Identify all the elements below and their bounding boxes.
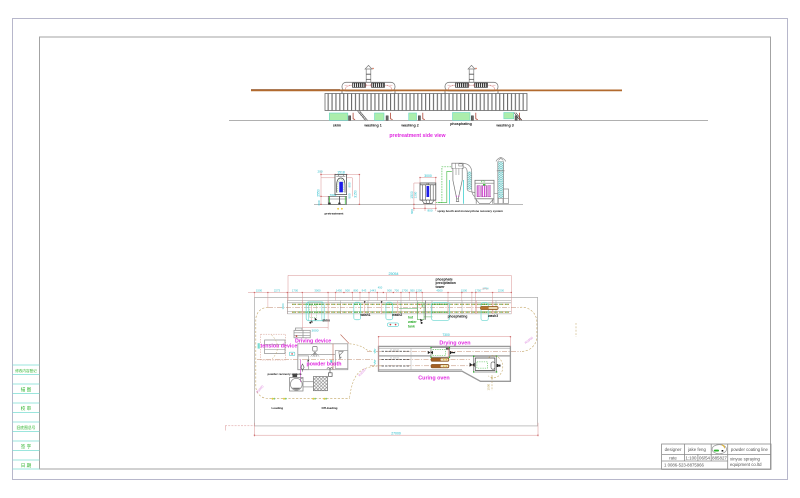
svg-text:tower: tower <box>436 285 446 289</box>
svg-text:skim: skim <box>333 124 341 128</box>
svg-text:powder coating line: powder coating line <box>731 447 769 452</box>
svg-text:tank: tank <box>408 324 415 328</box>
svg-text:修改内容登记: 修改内容登记 <box>15 368 37 373</box>
svg-text:1450: 1450 <box>336 288 343 292</box>
svg-text:wash2: wash2 <box>391 313 402 317</box>
svg-text:1700: 1700 <box>292 288 299 292</box>
svg-text:phosphating: phosphating <box>448 314 468 318</box>
svg-text:water: water <box>407 320 417 324</box>
svg-text:jake feng: jake feng <box>687 447 706 452</box>
svg-text:800: 800 <box>427 208 432 212</box>
svg-text:06/54: 06/54 <box>699 456 711 461</box>
svg-text:designer: designer <box>665 447 682 452</box>
svg-text:spray booth and monocyclone re: spray booth and monocyclone recovery sys… <box>437 209 503 213</box>
svg-text:描 图: 描 图 <box>21 386 32 393</box>
svg-text:25054: 25054 <box>389 272 399 276</box>
svg-text:450: 450 <box>378 285 383 289</box>
svg-text:tension device: tension device <box>261 344 298 350</box>
svg-text:3150: 3150 <box>354 190 358 198</box>
svg-text:900: 900 <box>345 288 350 292</box>
svg-text:1443: 1443 <box>370 288 377 292</box>
svg-text:skim: skim <box>322 319 330 323</box>
svg-text:2550: 2550 <box>317 189 321 197</box>
svg-text:3000: 3000 <box>424 174 432 178</box>
svg-text:1500: 1500 <box>487 383 491 390</box>
svg-text:1200: 1200 <box>413 191 417 198</box>
svg-text:1500: 1500 <box>461 288 468 292</box>
svg-text:1700: 1700 <box>402 288 409 292</box>
svg-text:11 140 11: 11 140 11 <box>390 349 400 351</box>
svg-text:800: 800 <box>353 288 358 292</box>
svg-text:旧底图总号: 旧底图总号 <box>17 425 36 430</box>
svg-text:27000: 27000 <box>391 431 401 435</box>
svg-text:943: 943 <box>362 288 367 292</box>
svg-text:pretreatment: pretreatment <box>325 211 344 215</box>
svg-text:签 字: 签 字 <box>21 443 32 449</box>
svg-text:3000: 3000 <box>312 329 319 333</box>
svg-text:7300: 7300 <box>442 333 450 337</box>
svg-text:800: 800 <box>348 193 352 198</box>
svg-text:950: 950 <box>410 288 415 292</box>
svg-text:pretreatment side view: pretreatment side view <box>389 133 446 139</box>
svg-text:900: 900 <box>348 182 352 187</box>
svg-text:1 0086-523-8875966: 1 0086-523-8875966 <box>664 463 705 468</box>
svg-text:hot: hot <box>408 315 414 319</box>
svg-text:Drying oven: Drying oven <box>439 341 470 347</box>
svg-text:phosphating: phosphating <box>450 122 472 126</box>
svg-text:885827: 885827 <box>712 456 727 461</box>
svg-text:1500: 1500 <box>256 288 263 292</box>
svg-text:Curing oven: Curing oven <box>418 376 449 382</box>
svg-text:Loading: Loading <box>271 406 283 410</box>
svg-text:xinyue spraying: xinyue spraying <box>730 456 760 461</box>
svg-text:200: 200 <box>317 170 322 174</box>
svg-text:2273: 2273 <box>274 288 281 292</box>
svg-text:1500: 1500 <box>281 303 285 310</box>
svg-text:2200: 2200 <box>498 288 505 292</box>
svg-text:900: 900 <box>387 288 392 292</box>
svg-text:600: 600 <box>317 200 321 205</box>
svg-text:700: 700 <box>394 288 399 292</box>
svg-text:1200: 1200 <box>416 288 423 292</box>
svg-text:1:100: 1:100 <box>686 456 698 461</box>
svg-text:1750: 1750 <box>475 288 482 292</box>
svg-text:校 审: 校 审 <box>21 405 32 412</box>
svg-text:wash3: wash3 <box>487 314 498 318</box>
svg-text:powder booth: powder booth <box>307 361 342 367</box>
svg-text:wash1: wash1 <box>359 313 370 317</box>
svg-text:Off-loading: Off-loading <box>322 406 338 410</box>
svg-text:equipment co.ltd: equipment co.ltd <box>730 462 762 467</box>
svg-text:11 140 11: 11 140 11 <box>390 358 400 360</box>
svg-text:rate: rate <box>669 456 677 461</box>
svg-text:3000: 3000 <box>314 288 321 292</box>
svg-text:washing 1: washing 1 <box>363 124 381 128</box>
svg-text:washing 2: washing 2 <box>400 124 418 128</box>
svg-text:1518: 1518 <box>337 171 345 175</box>
svg-text:washing 3: washing 3 <box>495 124 513 128</box>
svg-text:600: 600 <box>410 209 414 214</box>
